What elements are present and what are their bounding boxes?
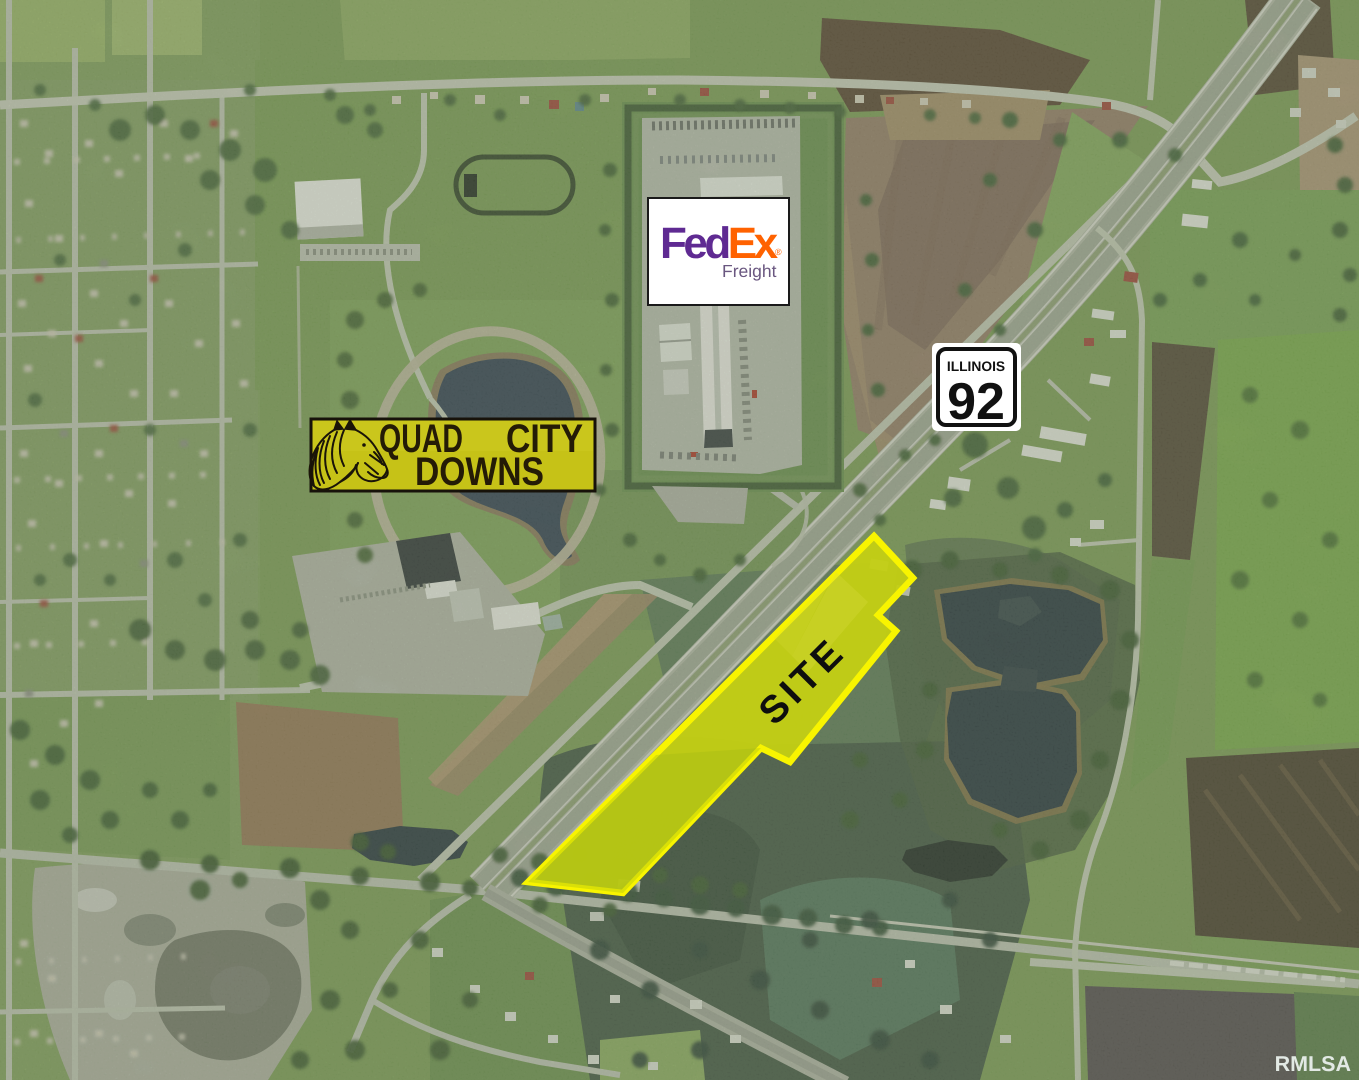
svg-text:ILLINOIS: ILLINOIS (947, 359, 1005, 374)
svg-text:92: 92 (947, 373, 1005, 431)
svg-text:DOWNS: DOWNS (415, 450, 544, 494)
svg-text:®: ® (775, 247, 782, 257)
svg-text:Freight: Freight (722, 261, 777, 281)
svg-text:RMLSA: RMLSA (1275, 1052, 1351, 1076)
